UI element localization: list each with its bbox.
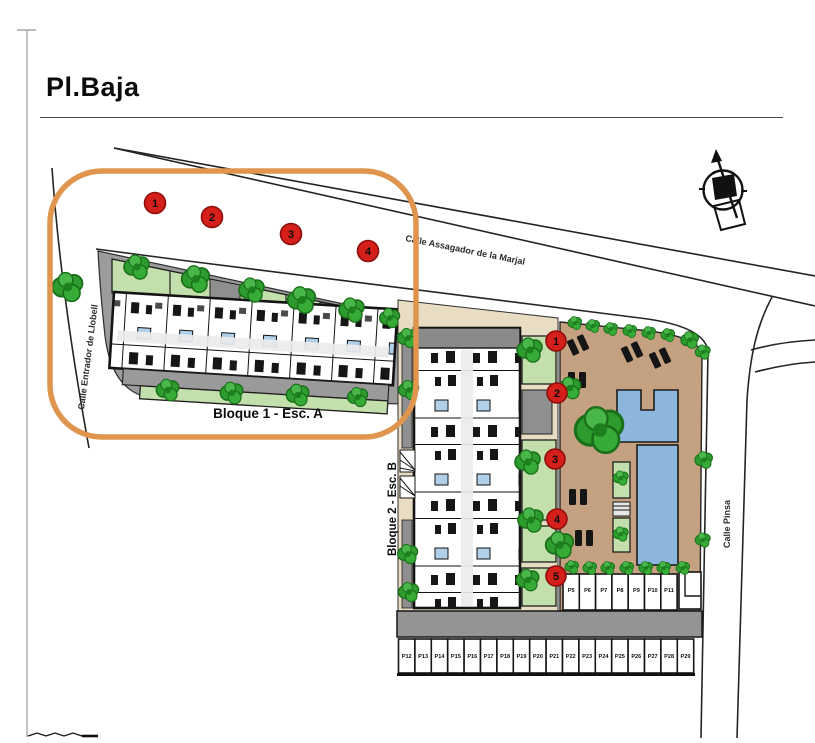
svg-text:2: 2	[554, 388, 560, 400]
street-name-right: Calle Pinsa	[722, 499, 732, 548]
block2-label: Bloque 2 - Esc. B	[387, 462, 399, 556]
svg-text:P28: P28	[664, 654, 674, 660]
svg-text:P25: P25	[615, 654, 625, 660]
site-plan-canvas: Calle Assagador de la Marjal Calle Entra…	[0, 0, 815, 743]
parking-stall: P13	[415, 639, 431, 673]
block1-label: Bloque 1 - Esc. A	[213, 406, 323, 421]
svg-text:P8: P8	[617, 588, 624, 594]
parking-stall: P16	[464, 639, 480, 673]
svg-text:P22: P22	[566, 654, 576, 660]
parking-stall: P10	[645, 574, 661, 610]
svg-text:P19: P19	[517, 654, 527, 660]
unit-marker[interactable]: 3	[281, 224, 302, 245]
site-plan-page: Pl.Baja	[0, 0, 815, 743]
svg-text:P12: P12	[402, 654, 412, 660]
svg-text:P10: P10	[648, 588, 658, 594]
svg-text:P27: P27	[648, 654, 658, 660]
parking-stall: P19	[513, 639, 529, 673]
block2-corridor	[461, 350, 473, 606]
svg-text:1: 1	[553, 336, 559, 348]
svg-text:P7: P7	[600, 588, 607, 594]
street-branch	[751, 340, 815, 350]
unit-marker[interactable]: 5	[546, 566, 566, 586]
street-branch	[755, 362, 815, 372]
svg-text:P15: P15	[451, 654, 461, 660]
svg-text:3: 3	[288, 229, 294, 241]
street-name-top: Calle Assagador de la Marjal	[405, 233, 526, 267]
parking-stall: P7	[596, 574, 612, 610]
parking-aisle	[397, 611, 702, 637]
svg-text:3: 3	[552, 454, 558, 466]
parking-stall: P15	[448, 639, 464, 673]
svg-text:P5: P5	[568, 588, 575, 594]
svg-text:P21: P21	[549, 654, 559, 660]
parking-stall: P12	[399, 639, 415, 673]
unit-marker[interactable]: 4	[547, 509, 567, 529]
unit-marker[interactable]: 2	[202, 207, 223, 228]
unit-marker[interactable]: 4	[358, 241, 379, 262]
svg-text:2: 2	[209, 212, 215, 224]
parking-stall: P21	[546, 639, 562, 673]
parking-stall: P22	[563, 639, 579, 673]
scale-bar	[28, 733, 82, 736]
svg-text:P13: P13	[418, 654, 428, 660]
parking-stall: P14	[431, 639, 447, 673]
svg-text:P29: P29	[681, 654, 691, 660]
parking-stall: P11	[661, 574, 677, 610]
parking-ramp	[679, 572, 701, 609]
parking-stall: P24	[595, 639, 611, 673]
parking-stall: P9	[628, 574, 644, 610]
parking-upper-row: P5 P6 P7 P8 P9 P10 P11	[563, 572, 701, 610]
unit-marker[interactable]: 1	[145, 193, 166, 214]
block1-markers: 1 2 3 4	[145, 193, 379, 262]
street-right-edge	[737, 297, 772, 738]
parking-stall: P26	[628, 639, 644, 673]
street-name-left: Calle Entrador de Llobell	[76, 304, 100, 410]
svg-text:P23: P23	[582, 654, 592, 660]
parking-stall: P8	[612, 574, 628, 610]
svg-text:P9: P9	[633, 588, 640, 594]
parking-stall: P6	[579, 574, 595, 610]
parking-stall: P17	[481, 639, 497, 673]
parking-stall: P28	[661, 639, 677, 673]
svg-text:P6: P6	[584, 588, 591, 594]
svg-text:P14: P14	[435, 654, 446, 660]
parking-lower-row: P12 P13 P14 P15 P16 P17 P18 P19 P20 P21 …	[397, 639, 695, 675]
svg-text:P16: P16	[467, 654, 477, 660]
unit-marker[interactable]: 1	[546, 331, 566, 351]
unit-marker[interactable]: 3	[545, 449, 565, 469]
svg-text:4: 4	[554, 514, 561, 526]
svg-text:P18: P18	[500, 654, 510, 660]
svg-text:4: 4	[365, 246, 372, 258]
parking-stall: P20	[530, 639, 546, 673]
svg-text:P11: P11	[664, 588, 674, 594]
svg-text:P17: P17	[484, 654, 494, 660]
svg-text:1: 1	[152, 198, 158, 210]
svg-text:P26: P26	[631, 654, 641, 660]
north-arrow-icon	[699, 149, 747, 230]
unit-marker[interactable]: 2	[547, 383, 567, 403]
parking-stall: P29	[677, 639, 693, 673]
svg-text:P20: P20	[533, 654, 543, 660]
parking-stall: P18	[497, 639, 513, 673]
svg-text:5: 5	[553, 571, 559, 583]
parking-stall: P23	[579, 639, 595, 673]
parking-stall: P25	[612, 639, 628, 673]
svg-text:P24: P24	[599, 654, 610, 660]
parking-stall: P27	[645, 639, 661, 673]
pool-lower	[637, 445, 678, 565]
pool-steps	[613, 502, 630, 516]
tree-icon	[52, 273, 82, 302]
